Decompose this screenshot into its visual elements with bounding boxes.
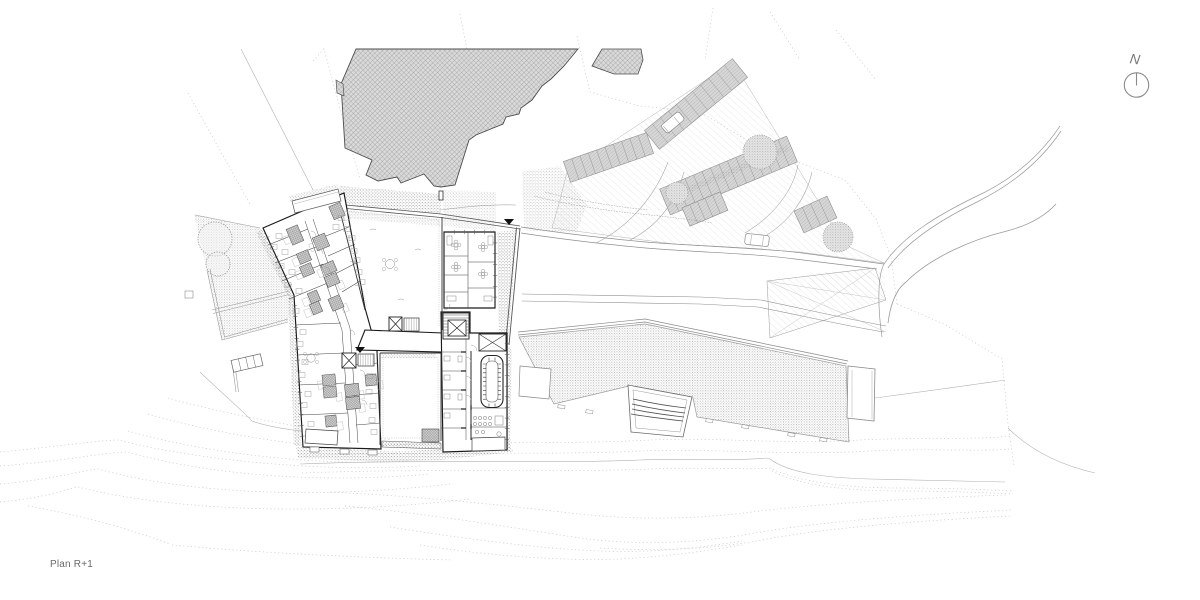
svg-text:Plan R+1: Plan R+1 — [50, 559, 93, 570]
